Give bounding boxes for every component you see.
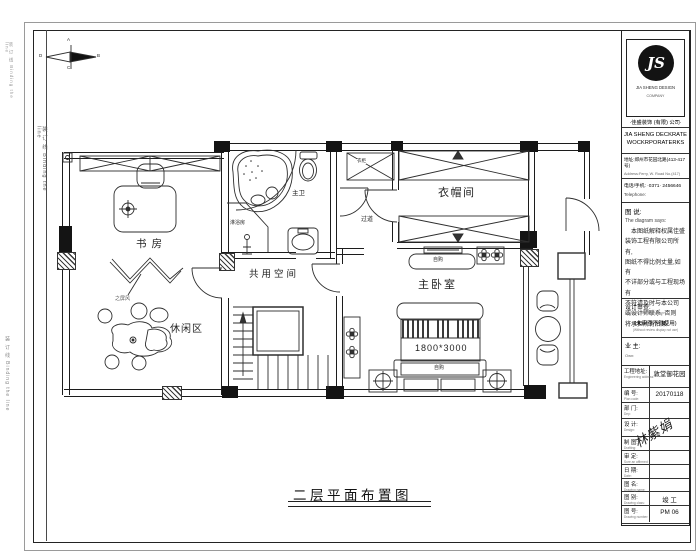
titleblock-row: 编 号:Plan code:20170118: [622, 387, 689, 402]
row-label: 编 号:: [624, 389, 649, 397]
company-logo-icon: JS: [638, 45, 674, 81]
note-bed-self-purchase: 自购: [434, 366, 444, 371]
row-label: 图 名:: [624, 480, 649, 488]
row-label: 部 门:: [624, 404, 649, 412]
address-en: Address:Ferry, W. Road No.(417): [624, 172, 687, 176]
row-value: [650, 465, 689, 478]
note-closet: 衣柜: [357, 159, 366, 164]
room-label-cloakroom: 衣帽间: [438, 188, 476, 199]
titleblock-row: 部 门:Dep:: [622, 402, 689, 418]
review-note-en: (Without review display not use): [625, 328, 686, 332]
owner-label: 业 主:: [625, 341, 686, 350]
room-label-shared-space: 共用空间: [249, 270, 299, 280]
logo-caption: JIA SHENG DESIGN: [627, 86, 684, 90]
row-value: [650, 479, 689, 491]
row-label-en: Sure an affirmed:: [624, 460, 649, 464]
row-value: [650, 403, 689, 418]
diagram-note-label-en: The diagram says:: [625, 218, 686, 224]
bed-dimension: 1800*3000: [415, 344, 468, 353]
room-label-study: 书房: [136, 239, 167, 250]
logo-box: JS JIA SHENG DESIGN COMPANY: [626, 39, 685, 117]
phone-cn: 电话/手机: ·0371· 2456646: [624, 182, 687, 189]
row-label: 图 别:: [624, 493, 649, 501]
disclaimer-line: 装饰工程有限公司所有,: [625, 237, 686, 258]
row-label-en: Drawing number:: [624, 515, 649, 519]
titleblock-row: 图 号:Drawing number:PM 06: [622, 505, 689, 522]
drawing-sheet: 装 订 线 Binding the line 装 订 线 Binding the…: [0, 0, 700, 560]
disclaimer-line: 图纸不得比例丈量,如有: [625, 258, 686, 279]
title-block: JS JIA SHENG DESIGN COMPANY ·佳盛装饰 (有限) 公…: [621, 30, 690, 526]
note-screen: 之屏风: [115, 297, 130, 302]
logo-caption-2: COMPANY: [627, 95, 684, 99]
review-note: (未审查不得使用): [625, 319, 686, 327]
room-label-corridor: 过道: [361, 217, 373, 223]
titleblock-row: 审 定:Sure an affirmed:: [622, 450, 689, 464]
drawing-title-underline: [288, 501, 431, 507]
row-label-en: Plan code:: [624, 397, 649, 401]
row-label-en: Drawing class:: [624, 501, 649, 505]
note-tv-self-purchase: 自购: [433, 258, 443, 263]
row-label: 图 号:: [624, 507, 649, 515]
address-cn: 地址:郑州市花园北路(413-417号): [624, 157, 687, 169]
room-label-master-bedroom: 主卧室: [418, 280, 457, 291]
titleblock-rows: 工程地址:Engineering address:敦堂御花园编 号:Plan c…: [622, 365, 689, 524]
row-label: 日 期:: [624, 466, 649, 474]
titleblock-row: 图 名:Drawing name:: [622, 478, 689, 491]
company-name-cn: ·佳盛装饰 (有限) 公司·: [622, 118, 689, 126]
titleblock-row: 日 期:Date:: [622, 464, 689, 478]
row-value: PM 06: [650, 506, 689, 522]
disclaimer-line: 不详部分或与工程现场有: [625, 278, 686, 299]
row-label: 审 定:: [624, 452, 649, 460]
design-review-label: 设计审查:: [625, 302, 686, 311]
row-value: 20170118: [650, 388, 689, 402]
row-label-en: Date:: [624, 474, 649, 478]
design-review-label-en: Design to enter the drawn:: [625, 311, 686, 315]
row-label-en: Dep:: [624, 412, 649, 416]
disclaimer-line: 本图纸解释权属佳盛: [625, 227, 686, 237]
floor-plan-linework: [0, 0, 700, 560]
company-name-en-2: WOCKRPORATERKS: [622, 140, 689, 146]
row-value: 敦堂御花园: [650, 366, 689, 387]
titleblock-row: 图 别:Drawing class:竣 工: [622, 491, 689, 505]
company-name-en: JIA SHENG DECKRATE: [622, 132, 689, 138]
row-value: [650, 451, 689, 464]
room-label-master-bath: 主卫: [292, 191, 305, 198]
diagram-note-label: 图 说:: [625, 206, 686, 216]
row-value: 竣 工: [650, 492, 689, 505]
row-label-en: Engineering address:: [624, 375, 649, 379]
owner-label-en: Own:: [625, 353, 686, 358]
phone-en: Telephone:: [624, 192, 687, 197]
room-label-shower: 淋浴房: [230, 221, 245, 226]
row-label: 工程地址:: [624, 367, 649, 375]
titleblock-row: 工程地址:Engineering address:敦堂御花园: [622, 365, 689, 387]
room-label-leisure: 休闲区: [170, 325, 203, 335]
